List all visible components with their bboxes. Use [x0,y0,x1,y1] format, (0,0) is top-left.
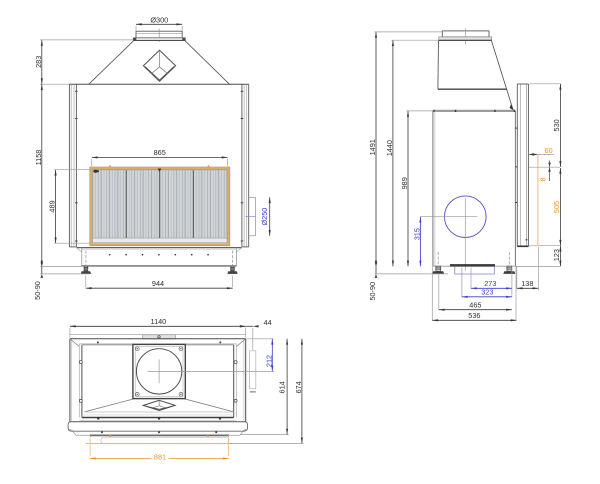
svg-text:489: 489 [48,200,57,212]
svg-text:50-90: 50-90 [33,281,42,300]
svg-text:614: 614 [277,381,286,393]
svg-text:138: 138 [521,279,533,288]
svg-text:536: 536 [468,311,480,320]
svg-text:674: 674 [294,381,303,393]
svg-text:1140: 1140 [151,317,167,326]
svg-text:123: 123 [552,249,561,261]
svg-text:865: 865 [154,148,166,157]
svg-text:44: 44 [264,318,272,327]
svg-text:212: 212 [264,355,273,367]
svg-text:989: 989 [400,177,409,189]
svg-text:315: 315 [412,228,421,240]
svg-text:Ø300: Ø300 [150,16,168,25]
svg-text:465: 465 [469,301,481,310]
svg-text:50-90: 50-90 [368,282,377,301]
svg-text:1491: 1491 [368,139,377,155]
svg-text:881: 881 [154,452,166,461]
svg-text:323: 323 [481,288,493,297]
svg-text:8: 8 [538,177,547,181]
svg-text:944: 944 [152,279,164,288]
svg-text:1440: 1440 [385,140,394,156]
svg-text:60: 60 [545,146,553,155]
svg-text:505: 505 [552,201,561,213]
svg-text:Ø250: Ø250 [260,208,269,226]
svg-text:1158: 1158 [34,150,43,166]
svg-text:530: 530 [552,119,561,131]
svg-text:283: 283 [34,56,43,68]
